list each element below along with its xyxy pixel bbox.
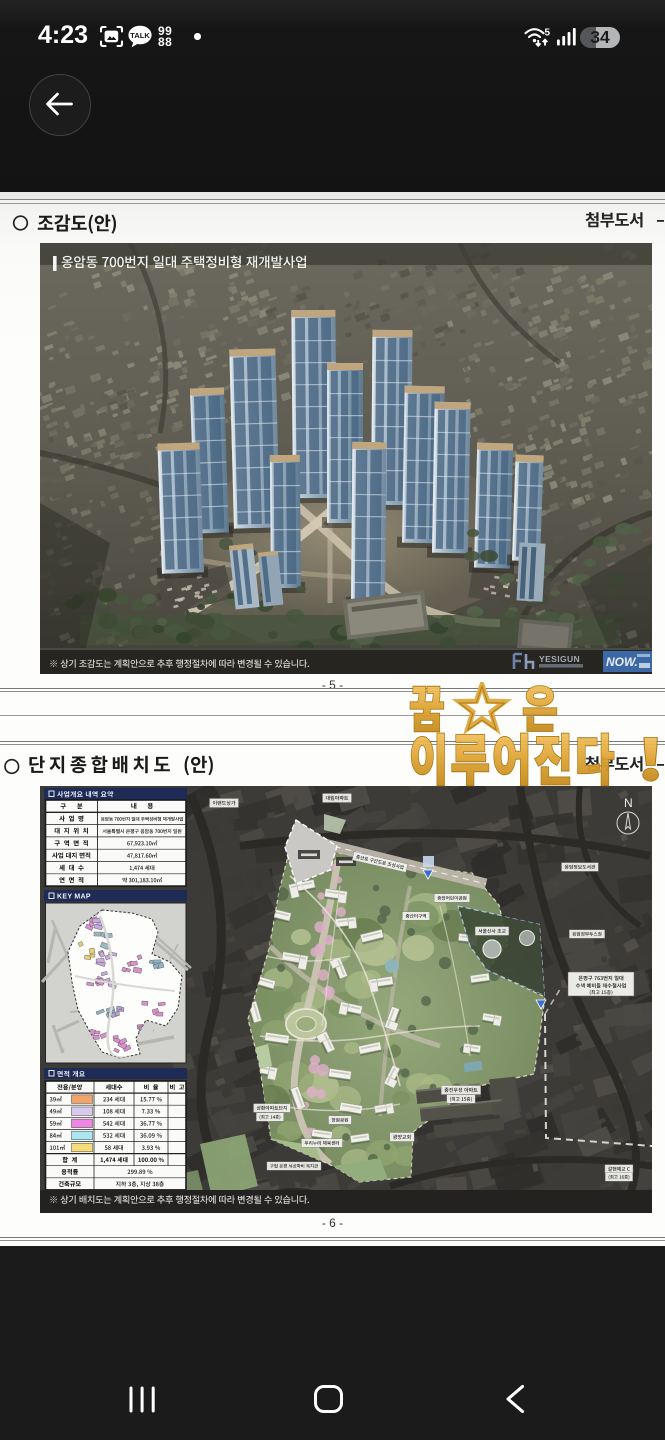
- svg-text:TALK: TALK: [130, 31, 150, 40]
- svg-text:YESIGUN: YESIGUN: [539, 654, 580, 664]
- svg-text:KEY MAP: KEY MAP: [57, 893, 91, 900]
- svg-text:NOW.: NOW.: [606, 655, 638, 669]
- svg-text:5: 5: [545, 28, 551, 39]
